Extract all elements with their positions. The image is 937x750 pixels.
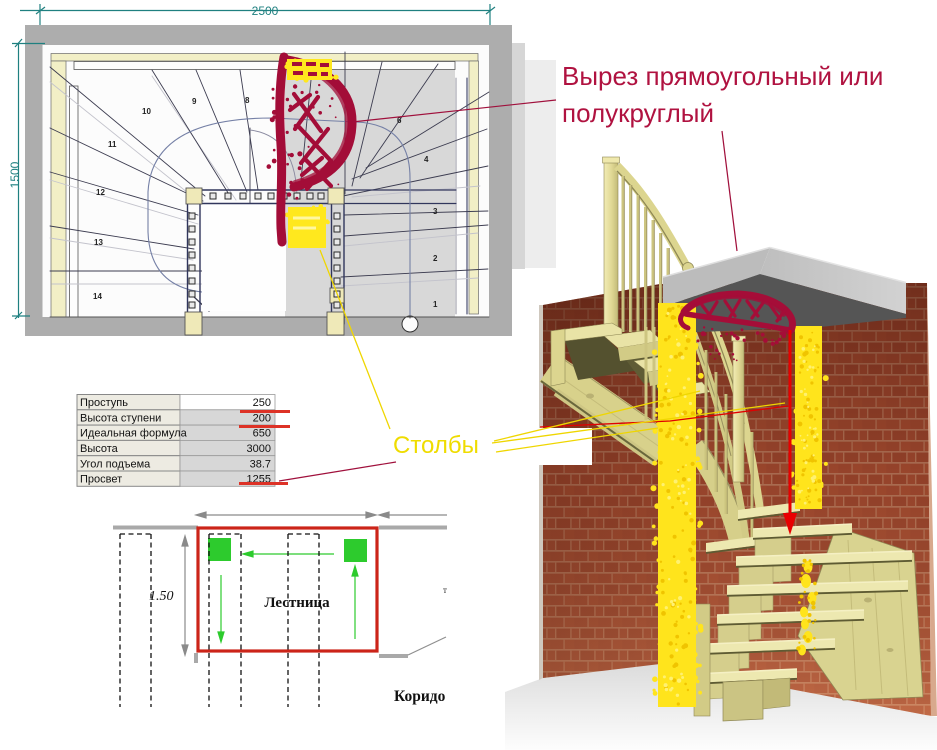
svg-text:11: 11 (108, 140, 117, 149)
svg-text:1500: 1500 (8, 161, 22, 188)
svg-text:3: 3 (433, 207, 438, 216)
svg-text:3000: 3000 (247, 443, 271, 455)
svg-text:Лестница: Лестница (264, 595, 330, 611)
svg-text:4: 4 (424, 155, 429, 164)
svg-text:8: 8 (245, 96, 250, 105)
svg-text:2500: 2500 (252, 4, 279, 18)
svg-text:1.50: 1.50 (149, 589, 174, 604)
svg-text:Вырез прямоугольный или: Вырез прямоугольный или (562, 61, 883, 91)
svg-text:Высота ступени: Высота ступени (80, 412, 161, 424)
svg-text:Идеальная формула: Идеальная формула (80, 428, 188, 440)
svg-text:14: 14 (93, 292, 102, 301)
svg-text:38.7: 38.7 (250, 458, 271, 470)
svg-text:полукруглый: полукруглый (562, 98, 714, 128)
svg-text:Угол подъема: Угол подъема (80, 458, 151, 470)
svg-text:9: 9 (192, 97, 197, 106)
svg-text:Просвет: Просвет (80, 474, 122, 486)
svg-text:Коридо: Коридо (394, 688, 446, 705)
svg-text:650: 650 (253, 428, 271, 440)
svg-text:10: 10 (142, 107, 151, 116)
svg-text:т: т (443, 585, 447, 595)
svg-text:Столбы: Столбы (393, 432, 479, 459)
svg-text:250: 250 (253, 397, 271, 409)
svg-text:2: 2 (433, 254, 438, 263)
svg-text:12: 12 (96, 188, 105, 197)
svg-text:Высота: Высота (80, 443, 119, 455)
svg-text:1: 1 (433, 300, 438, 309)
svg-text:200: 200 (253, 412, 271, 424)
svg-text:13: 13 (94, 238, 103, 247)
svg-text:Проступь: Проступь (80, 397, 128, 409)
